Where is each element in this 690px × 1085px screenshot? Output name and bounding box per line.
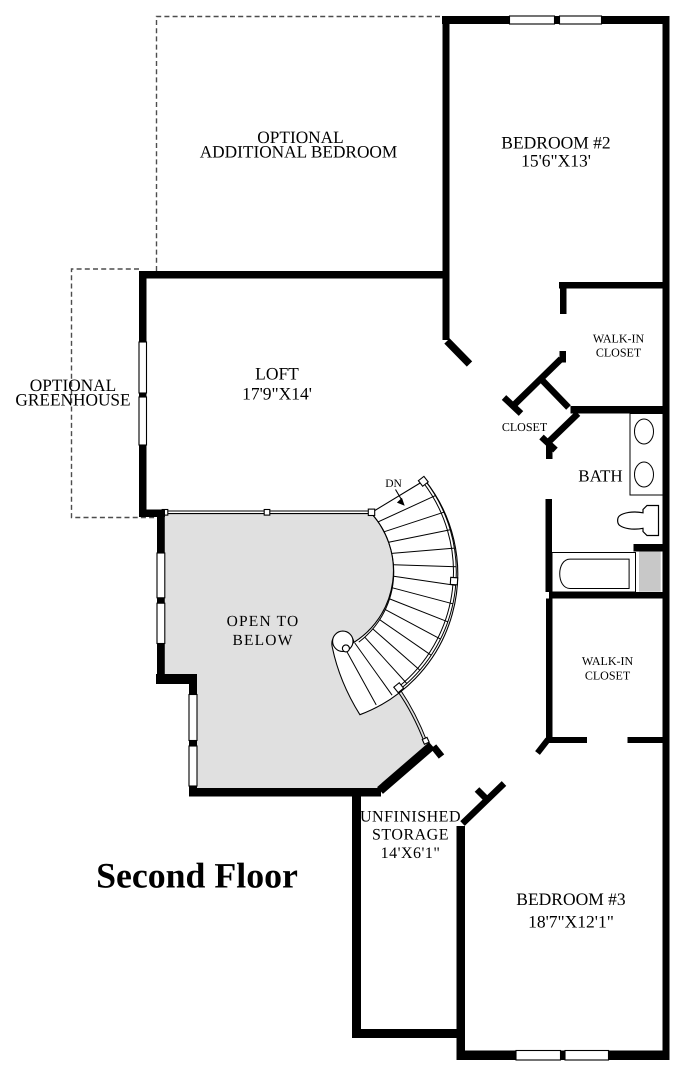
svg-text:OPEN TO: OPEN TO: [227, 613, 300, 630]
svg-text:18'7"X12'1": 18'7"X12'1": [528, 912, 614, 932]
svg-text:CLOSET: CLOSET: [596, 346, 642, 360]
svg-text:BEDROOM #3: BEDROOM #3: [516, 889, 626, 909]
svg-text:GREENHOUSE: GREENHOUSE: [15, 391, 130, 410]
svg-text:CLOSET: CLOSET: [585, 669, 631, 683]
svg-text:BEDROOM #2: BEDROOM #2: [501, 133, 610, 153]
svg-text:Second Floor: Second Floor: [96, 856, 298, 896]
svg-text:ADDITIONAL BEDROOM: ADDITIONAL BEDROOM: [200, 143, 398, 162]
svg-text:17'9"X14': 17'9"X14': [242, 383, 312, 403]
svg-text:LOFT: LOFT: [255, 364, 299, 384]
svg-text:WALK-IN: WALK-IN: [593, 332, 645, 346]
svg-text:WALK-IN: WALK-IN: [582, 654, 634, 668]
svg-text:DN: DN: [385, 478, 402, 490]
svg-text:CLOSET: CLOSET: [502, 420, 548, 434]
svg-text:BATH: BATH: [578, 467, 622, 486]
svg-text:STORAGE: STORAGE: [372, 827, 449, 844]
svg-text:UNFINISHED: UNFINISHED: [360, 809, 461, 826]
svg-text:BELOW: BELOW: [232, 632, 293, 649]
svg-text:14'X6'1": 14'X6'1": [381, 845, 441, 862]
svg-text:15'6"X13': 15'6"X13': [521, 151, 591, 171]
